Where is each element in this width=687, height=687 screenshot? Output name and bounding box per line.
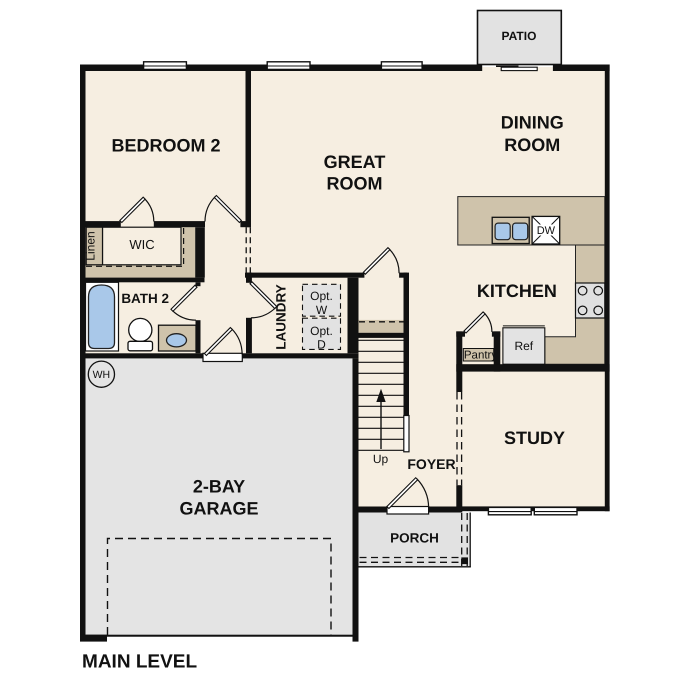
svg-text:BEDROOM 2: BEDROOM 2 [111,135,220,155]
svg-text:GARAGE: GARAGE [179,498,258,518]
svg-text:MAIN LEVEL: MAIN LEVEL [82,652,197,673]
svg-text:ROOM: ROOM [504,135,560,155]
svg-text:LAUNDRY: LAUNDRY [274,284,289,350]
svg-text:2-BAY: 2-BAY [193,476,245,496]
svg-text:WH: WH [93,369,111,381]
svg-text:ROOM: ROOM [327,174,383,194]
svg-text:Opt.: Opt. [310,324,333,338]
svg-text:DW: DW [537,225,556,237]
svg-text:Linen: Linen [84,231,98,260]
svg-text:FOYER: FOYER [407,456,455,472]
svg-text:BATH 2: BATH 2 [121,291,169,306]
svg-text:PORCH: PORCH [390,531,439,546]
svg-text:Pantry: Pantry [464,349,497,361]
svg-text:D: D [317,338,326,352]
svg-text:WIC: WIC [129,237,154,252]
svg-text:KITCHEN: KITCHEN [477,281,557,301]
svg-text:STUDY: STUDY [504,428,565,448]
svg-text:PATIO: PATIO [502,29,537,43]
svg-text:GREAT: GREAT [324,152,386,172]
svg-text:W: W [316,303,328,317]
svg-text:DINING: DINING [501,112,564,132]
svg-text:Ref: Ref [514,339,533,353]
svg-text:Up: Up [373,452,389,466]
svg-text:Opt.: Opt. [310,289,333,303]
